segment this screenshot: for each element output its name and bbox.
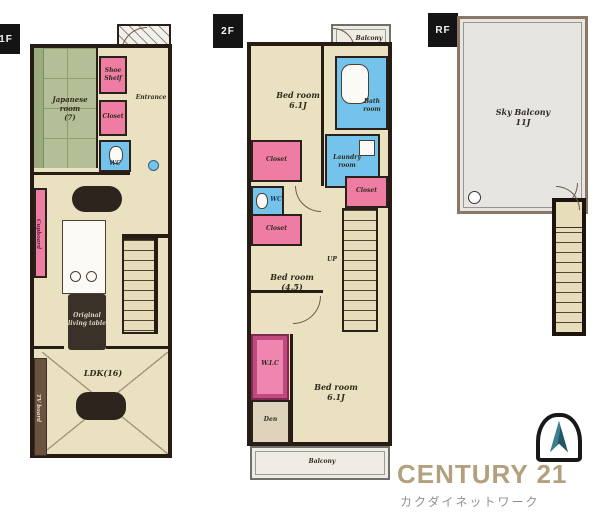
wall: [321, 46, 324, 186]
label-closet2f-1: Closet: [251, 156, 302, 164]
label-tv-board: TV board: [35, 366, 41, 450]
label-entrance: Entrance: [130, 94, 172, 102]
wall: [34, 346, 64, 349]
wall: [122, 234, 168, 238]
floor-badge-rf: RF: [428, 13, 458, 47]
plan-2f: Bed room 6.1J Bath room Laundry room Clo…: [247, 42, 392, 446]
room-bath: [335, 56, 388, 130]
plan-1f: Japanese room (7) Shoe Shelf Entrance Cl…: [30, 44, 172, 458]
label-bedroom3: Bed room 6.1J: [303, 382, 369, 402]
stairs-2f: [342, 208, 378, 332]
label-closet2f-3: Closet: [251, 225, 302, 233]
label-closet-1f: Closet: [99, 113, 127, 121]
ldk-table: [76, 392, 126, 420]
label-up: UP: [323, 256, 341, 264]
bedroom-door-arc: [293, 296, 321, 324]
label-wic: W.I.C: [251, 360, 289, 368]
century21-wordmark: CENTURY 21: [397, 459, 592, 490]
label-bedroom2: Bed room (4.5): [259, 272, 325, 292]
label-wc-1f: WC: [99, 160, 131, 168]
wall: [34, 172, 130, 175]
label-wc-2f: WC: [267, 196, 285, 204]
floor-badge-1f: 1F: [0, 24, 20, 54]
label-bath: Bath room: [355, 98, 389, 113]
faucet-icon: [468, 191, 481, 204]
wall: [106, 346, 168, 349]
label-cupboard: Cupboard: [35, 194, 41, 274]
label-living-table: Original living table: [64, 312, 110, 327]
label-laundry: Laundry room: [327, 154, 367, 169]
floorplan-sheet: 1F Japanese room (7) Shoe Shelf Entrance…: [0, 0, 600, 525]
sink-icon: [148, 160, 159, 171]
stove-burner-icon: [86, 271, 97, 282]
hall-door-arc: [295, 186, 321, 212]
kitchen-counter: [62, 220, 106, 294]
label-sky-balcony: Sky Balcony 11J: [488, 107, 558, 127]
century21-seal-icon: [536, 413, 582, 462]
label-ldk: LDK(16): [68, 368, 138, 378]
stairs-1f: [122, 238, 156, 334]
century21-subtitle: カクダイネットワーク: [400, 493, 590, 510]
dining-table: [72, 186, 122, 212]
label-shoe-shelf: Shoe Shelf: [99, 67, 127, 82]
floor-badge-2f: 2F: [213, 14, 243, 48]
label-den: Den: [251, 416, 290, 424]
stairs-rf: [552, 198, 586, 336]
label-balcony-bottom: Balcony: [300, 458, 344, 466]
label-closet2f-2: Closet: [345, 187, 388, 195]
wall: [154, 234, 158, 334]
sky-balcony: Sky Balcony 11J: [457, 16, 588, 214]
wall: [290, 334, 293, 444]
stove-burner-icon: [70, 271, 81, 282]
label-japanese-room: Japanese room (7): [42, 96, 98, 122]
seal-sail-icon: [547, 420, 571, 453]
